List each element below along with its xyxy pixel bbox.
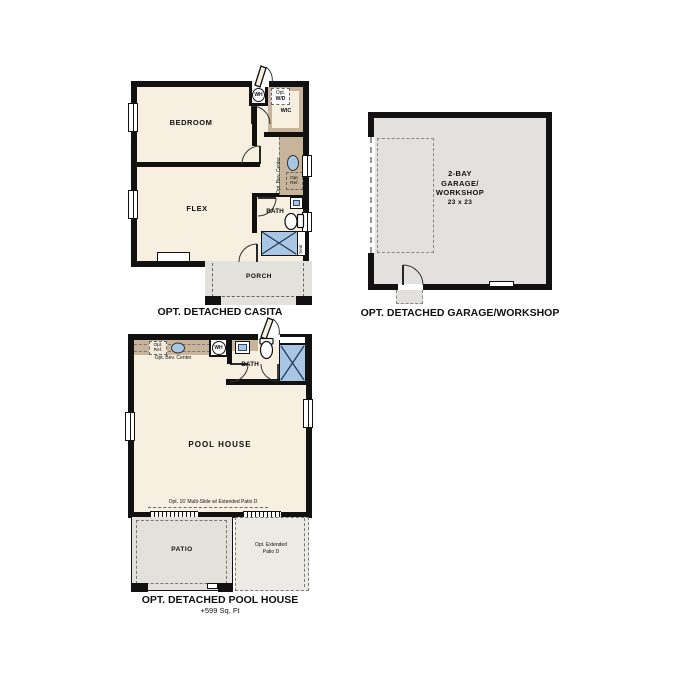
casita-bottom-window-box xyxy=(157,252,190,262)
floor-plan-sheet: WH Opt. W/D WIC Opt. Bev. Center Opt. Re… xyxy=(0,0,687,687)
patio-label: PATIO xyxy=(152,546,212,553)
casita-title: OPT. DETACHED CASITA xyxy=(131,307,309,319)
ph-bev-center-label: Opt. Bev. Center xyxy=(134,356,212,362)
casita-entry-opening xyxy=(252,81,269,87)
casita-bath-window xyxy=(302,212,312,232)
patio-corner-block-left xyxy=(131,583,148,592)
ph-bath-sink xyxy=(235,341,250,354)
garage-title: OPT. DETACHED GARAGE/WORKSHOP xyxy=(360,308,560,320)
flex-label: FLEX xyxy=(157,205,237,213)
porch-corner-block-right xyxy=(296,296,312,305)
ph-multislide-dash xyxy=(148,507,268,508)
patio-corner-block-right xyxy=(218,583,233,592)
ph-shower xyxy=(279,344,306,382)
patio-notch xyxy=(207,583,218,589)
seat-label: Seat xyxy=(298,233,303,254)
ph-entry-opening xyxy=(258,334,280,340)
porch-corner-block-left xyxy=(205,296,221,305)
garage-room-label: 2-BAY GARAGE/ WORKSHOP 23 x 23 xyxy=(400,169,520,207)
casita-water-heater-closet: WH xyxy=(249,87,268,106)
ext-patio-label: Opt. Extended Patio D xyxy=(238,542,304,556)
ext-patio-line2: Patio D xyxy=(238,549,304,556)
ph-bev-center-counter xyxy=(134,340,210,355)
ref-line2: Ref. xyxy=(290,181,299,186)
ph-counter-dash1 xyxy=(134,344,210,345)
ph-ref-line2: Ref. xyxy=(154,348,163,353)
porch-label: PORCH xyxy=(229,273,289,280)
garage-name-line1: 2-BAY xyxy=(400,169,520,179)
ext-patio-line1: Opt. Extended xyxy=(238,542,304,549)
casita-bedroom-window xyxy=(128,103,138,132)
casita-bev-center-label: Opt. Bev. Center xyxy=(277,139,283,194)
casita-bedroom-flex-wall xyxy=(137,162,260,167)
casita-bath-label: BATH xyxy=(255,208,295,215)
pool-house-label: POOL HOUSE xyxy=(128,441,312,450)
ph-opt-ref: Opt. Ref. xyxy=(149,341,167,355)
ph-counter-dash2 xyxy=(134,351,210,352)
ph-entry-door-arc xyxy=(273,319,279,335)
garage-dimensions: 23 x 23 xyxy=(400,198,520,208)
garage-name-line2: GARAGE/ xyxy=(400,179,520,189)
casita-shower xyxy=(261,231,298,256)
garage-rear-window xyxy=(489,281,514,287)
wic-label: WIC xyxy=(272,108,300,114)
pool-house-title: OPT. DETACHED POOL HOUSE xyxy=(120,595,320,607)
ph-bath-label: BATH xyxy=(230,361,270,368)
garage-stoop xyxy=(396,290,423,304)
wh-label: WH xyxy=(254,92,262,98)
ph-shower-seat: Seat xyxy=(279,336,306,344)
bedroom-label: BEDROOM xyxy=(141,119,241,127)
casita-opt-washer-dryer: Opt. W/D xyxy=(271,88,290,105)
casita-opt-ref: Opt. Ref. xyxy=(286,172,303,190)
casita-shower-seat: Seat xyxy=(297,231,306,256)
ph-right-window xyxy=(303,399,313,428)
ph-left-window xyxy=(125,412,135,441)
casita-hall-wall xyxy=(252,105,257,146)
ph-water-heater-icon: WH xyxy=(212,341,226,355)
ph-patio: PATIO xyxy=(131,517,233,591)
casita-hall-window xyxy=(302,155,312,177)
garage-name-line3: WORKSHOP xyxy=(400,188,520,198)
opt-wd-line2: W/D xyxy=(276,97,286,103)
ph-water-heater-closet: WH xyxy=(209,338,228,357)
garage-door-dashed-line xyxy=(370,137,372,253)
water-heater-icon: WH xyxy=(252,88,265,102)
pool-house-area: +599 Sq. Ft xyxy=(120,607,320,615)
ph-ext-patio: Opt. Extended Patio D xyxy=(235,517,309,591)
casita-flex-window xyxy=(128,190,138,219)
fixtures-overlay xyxy=(0,0,687,687)
ph-multislide-note: Opt. 16' Multi-Slide w/ Extended Patio D xyxy=(133,500,293,506)
ph-wh-label: WH xyxy=(214,345,222,351)
